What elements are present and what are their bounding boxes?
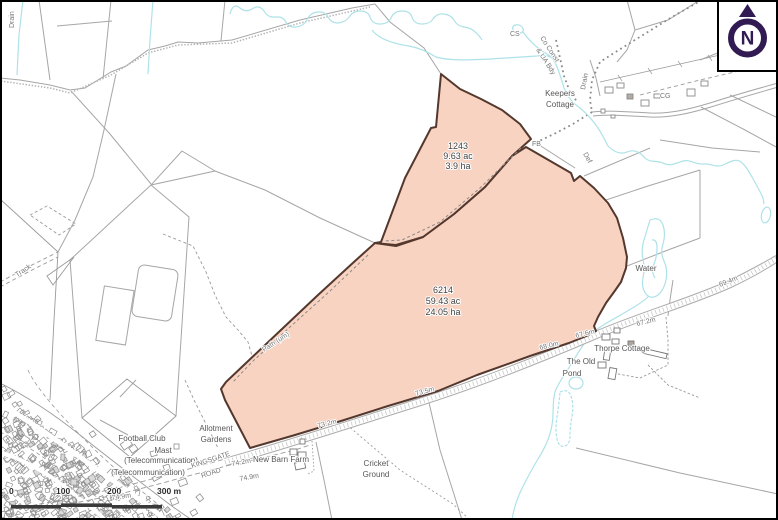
- svg-text:The Old: The Old: [567, 357, 595, 366]
- svg-text:0: 0: [9, 486, 14, 496]
- svg-text:Keepers: Keepers: [545, 89, 575, 98]
- svg-text:FB: FB: [532, 141, 541, 148]
- svg-text:CG: CG: [660, 93, 671, 100]
- svg-text:24.05 ha: 24.05 ha: [425, 307, 460, 317]
- svg-text:Mast: Mast: [154, 446, 172, 455]
- svg-text:Cricket: Cricket: [364, 459, 390, 468]
- svg-text:(Telecommunication): (Telecommunication): [124, 456, 198, 465]
- svg-text:N: N: [741, 29, 755, 50]
- svg-text:Allotment: Allotment: [199, 424, 233, 433]
- svg-text:300 m: 300 m: [157, 486, 182, 496]
- svg-text:6214: 6214: [433, 285, 453, 295]
- svg-text:Water: Water: [635, 264, 656, 273]
- svg-text:Cottage: Cottage: [546, 100, 575, 109]
- svg-text:Thorpe Cottage: Thorpe Cottage: [594, 344, 650, 353]
- svg-text:Football Club: Football Club: [118, 434, 166, 443]
- svg-text:100: 100: [56, 486, 70, 496]
- svg-text:Drain: Drain: [9, 11, 16, 28]
- svg-text:New Barn Farm: New Barn Farm: [253, 455, 309, 464]
- svg-text:59.43 ac: 59.43 ac: [426, 296, 461, 306]
- svg-text:Pond: Pond: [563, 369, 582, 378]
- svg-text:1243: 1243: [448, 141, 468, 151]
- svg-text:Gardens: Gardens: [201, 435, 232, 444]
- svg-text:3.9 ha: 3.9 ha: [445, 161, 470, 171]
- svg-text:CS: CS: [510, 31, 520, 38]
- svg-text:Ground: Ground: [363, 470, 390, 479]
- svg-text:9.63 ac: 9.63 ac: [443, 151, 473, 161]
- svg-text:(Telecommunication): (Telecommunication): [111, 468, 185, 477]
